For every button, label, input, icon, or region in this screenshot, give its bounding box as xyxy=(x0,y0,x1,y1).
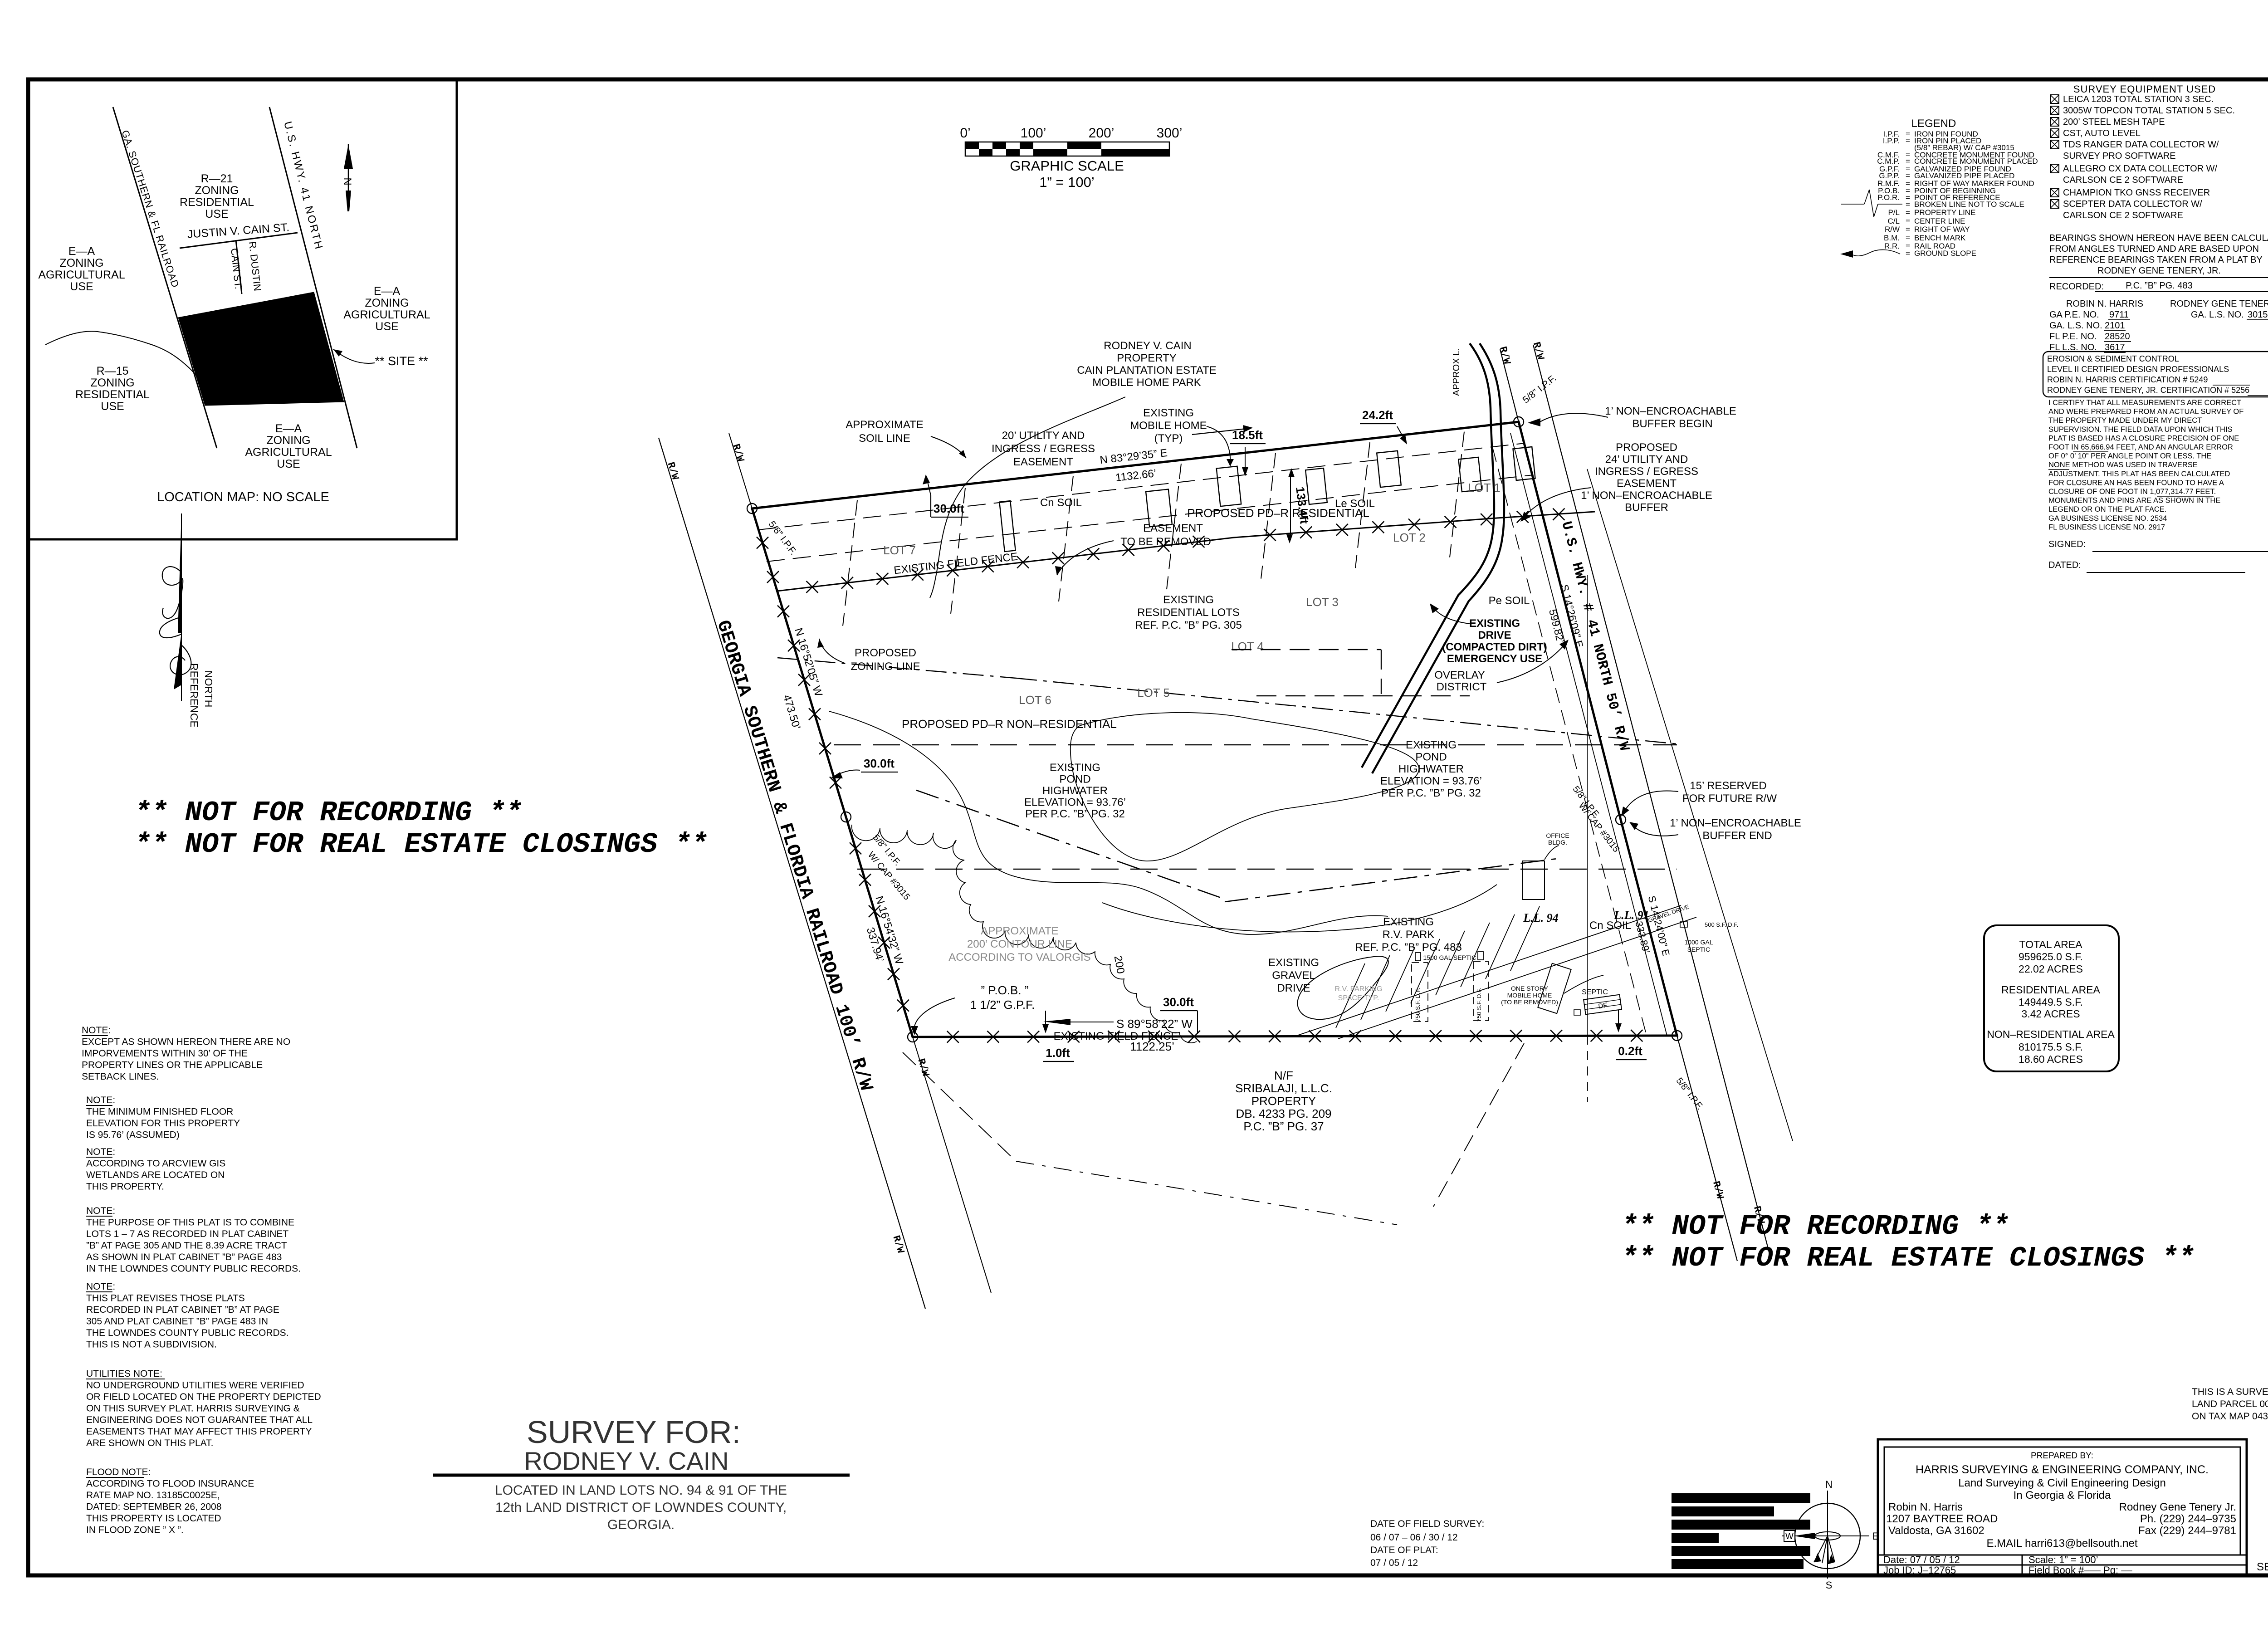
svg-text:P/L: P/L xyxy=(1888,208,1900,217)
svg-text:LOT 4: LOT 4 xyxy=(1231,640,1264,653)
svg-text:GA P.E. NO.: GA P.E. NO. xyxy=(2049,310,2099,320)
svg-text:SURVEY PRO SOFTWARE: SURVEY PRO SOFTWARE xyxy=(2063,151,2176,161)
svg-text:W: W xyxy=(1785,1532,1794,1541)
svg-text:EXISTING: EXISTING xyxy=(1143,407,1194,419)
svg-text:THIS PROPERTY IS LOCATED: THIS PROPERTY IS LOCATED xyxy=(86,1513,221,1524)
svg-text:RODNEY GENE TENERY, JR. CERTIF: RODNEY GENE TENERY, JR. CERTIFICATION # … xyxy=(2047,386,2249,395)
svg-text:NORTH: NORTH xyxy=(203,670,215,707)
svg-text:24’ UTILITY AND: 24’ UTILITY AND xyxy=(1605,454,1688,466)
svg-text:LOT 6: LOT 6 xyxy=(1019,693,1051,707)
svg-text:810175.5 S.F.: 810175.5 S.F. xyxy=(2019,1041,2083,1053)
svg-text:FLOOD NOTE:: FLOOD NOTE: xyxy=(86,1467,151,1477)
svg-text:THIS IS NOT A SUBDIVISION.: THIS IS NOT A SUBDIVISION. xyxy=(86,1340,217,1350)
svg-text:FOR FUTURE R/W: FOR FUTURE R/W xyxy=(1682,792,1777,805)
svg-text:12th LAND DISTRICT OF LOWNDES: 12th LAND DISTRICT OF LOWNDES COUNTY, xyxy=(495,1500,787,1515)
svg-text:C/L: C/L xyxy=(1888,217,1900,225)
svg-text:GA. L.S. NO.: GA. L.S. NO. xyxy=(2049,321,2102,331)
svg-text:=: = xyxy=(1906,137,1910,145)
svg-text:USE: USE xyxy=(205,208,228,220)
svg-text:REFERENCE BEARINGS TAKEN FROM: REFERENCE BEARINGS TAKEN FROM A PLAT BY xyxy=(2049,255,2263,265)
svg-text:RATE MAP NO. 13185C0025E,: RATE MAP NO. 13185C0025E, xyxy=(86,1490,220,1501)
svg-text:THIS IS A SURVEY OF: THIS IS A SURVEY OF xyxy=(2192,1387,2268,1397)
svg-text:Job ID: J–12765: Job ID: J–12765 xyxy=(1883,1565,1956,1576)
svg-text:EXISTING: EXISTING xyxy=(1383,916,1434,928)
svg-text:ZONING: ZONING xyxy=(90,376,134,389)
svg-text:NOTE:: NOTE: xyxy=(86,1147,115,1157)
svg-text:ZONING: ZONING xyxy=(59,257,103,269)
svg-text:RODNEY V. CAIN: RODNEY V. CAIN xyxy=(524,1447,728,1475)
svg-text:** NOT FOR RECORDING **: ** NOT FOR RECORDING ** xyxy=(134,797,523,829)
svg-text:LOTS 1 – 7 AS RECORDED IN PLAT: LOTS 1 – 7 AS RECORDED IN PLAT CABINET xyxy=(86,1229,288,1239)
svg-text:RESIDENTIAL LOTS: RESIDENTIAL LOTS xyxy=(1137,606,1240,619)
svg-text:EASEMENT: EASEMENT xyxy=(1143,522,1203,534)
svg-text:INGRESS / EGRESS: INGRESS / EGRESS xyxy=(992,443,1095,455)
svg-text:HIGHWATER: HIGHWATER xyxy=(1398,763,1464,775)
svg-text:750 S.F. D.F.: 750 S.F. D.F. xyxy=(1414,988,1421,1022)
svg-text:30.0ft: 30.0ft xyxy=(864,757,894,770)
svg-text:(TO BE REMOVED): (TO BE REMOVED) xyxy=(1501,998,1558,1006)
svg-text:R—21: R—21 xyxy=(201,172,233,185)
svg-text:200’ CONTOUR LINE: 200’ CONTOUR LINE xyxy=(967,938,1072,950)
svg-text:OR FIELD LOCATED ON THE PROPER: OR FIELD LOCATED ON THE PROPERTY DEPICTE… xyxy=(86,1392,321,1402)
svg-text:LOCATED IN LAND LOTS NO. 94 &: LOCATED IN LAND LOTS NO. 94 & 91 OF THE xyxy=(495,1483,787,1498)
svg-text:R/W: R/W xyxy=(1885,225,1900,234)
svg-text:CHAMPION TKO GNSS RECEIVER: CHAMPION TKO GNSS RECEIVER xyxy=(2063,188,2210,198)
svg-text:APPROXIMATE: APPROXIMATE xyxy=(981,925,1059,937)
svg-text:SOIL LINE: SOIL LINE xyxy=(859,432,910,445)
svg-text:UTILITIES NOTE:: UTILITIES NOTE: xyxy=(86,1369,162,1379)
svg-text:R—15: R—15 xyxy=(97,365,129,377)
svg-text:500 S.F. D.F.: 500 S.F. D.F. xyxy=(1705,921,1738,928)
svg-text:300’: 300’ xyxy=(1157,126,1183,141)
svg-text:” P.O.B. ”: ” P.O.B. ” xyxy=(981,983,1029,997)
svg-text:PROPOSED: PROPOSED xyxy=(855,647,916,659)
svg-text:GA. L.S. NO.: GA. L.S. NO. xyxy=(2191,310,2244,320)
svg-text:3015: 3015 xyxy=(2248,310,2268,320)
svg-text:AGRICULTURAL: AGRICULTURAL xyxy=(245,446,332,459)
svg-text:** NOT FOR RECORDING **: ** NOT FOR RECORDING ** xyxy=(1621,1210,2009,1242)
svg-text:LOT 1: LOT 1 xyxy=(1468,481,1501,494)
svg-text:Land Surveying & Civil Eng: Land Surveying & Civil Engineering Desig… xyxy=(1958,1477,2166,1489)
svg-text:FL L.S. NO.: FL L.S. NO. xyxy=(2049,342,2097,352)
svg-text:POND: POND xyxy=(1415,751,1447,763)
svg-text:REF. P.C. ”B” PG. 483: REF. P.C. ”B” PG. 483 xyxy=(1355,941,1462,953)
svg-text:EASEMENTS THAT MAY AFFECT THIS: EASEMENTS THAT MAY AFFECT THIS PROPERTY xyxy=(86,1427,312,1437)
svg-text:RESIDENTIAL AREA: RESIDENTIAL AREA xyxy=(2001,984,2100,996)
svg-text:15’ RESERVED: 15’ RESERVED xyxy=(1690,780,1766,792)
svg-text:(COMPACTED DIRT): (COMPACTED DIRT) xyxy=(1442,641,1547,653)
svg-text:R.V. PARKING: R.V. PARKING xyxy=(1335,985,1383,993)
svg-text:USE: USE xyxy=(70,280,93,293)
svg-text:R.V. PARK: R.V. PARK xyxy=(1383,929,1435,941)
svg-text:FOR CLOSURE AN HAS BEEN FOUND: FOR CLOSURE AN HAS BEEN FOUND TO HAVE A xyxy=(2048,479,2224,487)
svg-text:DATE OF FIELD SURVEY:: DATE OF FIELD SURVEY: xyxy=(1370,1519,1484,1529)
svg-text:E—A: E—A xyxy=(275,422,302,435)
svg-text:EXISTING: EXISTING xyxy=(1163,594,1214,606)
svg-text:=: = xyxy=(1906,200,1910,209)
svg-text:CENTER LINE: CENTER LINE xyxy=(1914,217,1965,225)
svg-text:24.2ft: 24.2ft xyxy=(1362,408,1393,422)
svg-text:PROPERTY: PROPERTY xyxy=(1251,1094,1316,1108)
svg-text:ACCORDING TO VALORGIS: ACCORDING TO VALORGIS xyxy=(948,951,1090,963)
svg-text:PER P.C. ”B” PG. 32: PER P.C. ”B” PG. 32 xyxy=(1025,808,1125,820)
svg-text:CARLSON CE 2 SOFTWARE: CARLSON CE 2 SOFTWARE xyxy=(2063,175,2183,185)
svg-text:FL BUSINESS LICENSE NO. 2917: FL BUSINESS LICENSE NO. 2917 xyxy=(2048,523,2165,531)
svg-text:OVERLAY: OVERLAY xyxy=(1434,669,1485,681)
svg-text:Scale: 1” = 100’: Scale: 1” = 100’ xyxy=(2028,1554,2098,1565)
svg-text:USE: USE xyxy=(375,320,398,333)
svg-text:18.5ft: 18.5ft xyxy=(1232,428,1263,442)
svg-text:PROPERTY LINES OR THE APPLICAB: PROPERTY LINES OR THE APPLICABLE xyxy=(82,1060,263,1071)
svg-text:EXISTING: EXISTING xyxy=(1050,762,1100,774)
svg-text:ROBIN N. HARRIS: ROBIN N. HARRIS xyxy=(2066,299,2143,309)
svg-text:P.O.R.: P.O.R. xyxy=(1877,193,1900,202)
svg-text:MOBILE HOME: MOBILE HOME xyxy=(1130,420,1207,432)
svg-text:MOBILE HOME PARK: MOBILE HOME PARK xyxy=(1092,376,1201,389)
svg-text:1’ NON–ENCROACHABLE: 1’ NON–ENCROACHABLE xyxy=(1605,405,1736,417)
svg-text:30.0ft: 30.0ft xyxy=(1163,995,1194,1009)
svg-text:BLDG.: BLDG. xyxy=(1548,839,1567,846)
svg-text:** NOT FOR REAL ESTATE CLOSING: ** NOT FOR REAL ESTATE CLOSINGS ** xyxy=(1621,1242,2195,1274)
svg-text:ALLEGRO CX DATA COLLECTOR W/: ALLEGRO CX DATA COLLECTOR W/ xyxy=(2063,164,2218,174)
svg-text:REF. P.C. ”B” PG. 305: REF. P.C. ”B” PG. 305 xyxy=(1135,619,1242,631)
svg-text:=: = xyxy=(1906,217,1910,225)
svg-text:DATE OF PLAT:: DATE OF PLAT: xyxy=(1370,1545,1438,1555)
svg-text:ZONING: ZONING xyxy=(365,297,409,309)
svg-text:AND WERE PREPARED FROM AN ACTU: AND WERE PREPARED FROM AN ACTUAL SURVEY … xyxy=(2048,408,2244,416)
svg-text:IN THE LOWNDES COUNTY PUBLIC R: IN THE LOWNDES COUNTY PUBLIC RECORDS. xyxy=(86,1264,301,1274)
svg-text:30.0ft: 30.0ft xyxy=(934,502,964,515)
svg-text:NOTE:: NOTE: xyxy=(86,1206,115,1216)
svg-text:E—A: E—A xyxy=(68,245,95,258)
svg-text:FL P.E. NO.: FL P.E. NO. xyxy=(2049,332,2097,342)
svg-text:EROSION & SEDIMENT CONTROL: EROSION & SEDIMENT CONTROL xyxy=(2047,354,2179,363)
svg-text:0.2ft: 0.2ft xyxy=(1618,1044,1642,1058)
svg-text:1000 GAL: 1000 GAL xyxy=(1684,939,1713,946)
svg-text:ELEVATION = 93.76’: ELEVATION = 93.76’ xyxy=(1024,797,1126,809)
svg-text:APPROXIMATE: APPROXIMATE xyxy=(846,419,924,431)
svg-text:REFERENCE: REFERENCE xyxy=(188,663,200,728)
svg-text:ELEVATION = 93.76’: ELEVATION = 93.76’ xyxy=(1380,775,1482,787)
svg-text:TDS RANGER DATA COLLECTOR W/: TDS RANGER DATA COLLECTOR W/ xyxy=(2063,140,2219,150)
svg-text:ON THIS SURVEY PLAT. HARRIS SU: ON THIS SURVEY PLAT. HARRIS SURVEYING & xyxy=(86,1403,300,1414)
svg-text:EMERGENCY USE: EMERGENCY USE xyxy=(1447,653,1542,665)
svg-text:TO BE REMOVED: TO BE REMOVED xyxy=(1120,536,1211,548)
svg-text:E.MAIL harri613@bellsouth.net: E.MAIL harri613@bellsouth.net xyxy=(1987,1537,2138,1550)
svg-text:22.02 ACRES: 22.02 ACRES xyxy=(2019,963,2083,975)
svg-text:DB. 4233 PG. 209: DB. 4233 PG. 209 xyxy=(1236,1107,1331,1120)
svg-text:LOT 5: LOT 5 xyxy=(1137,686,1170,699)
svg-text:SEPTIC: SEPTIC xyxy=(1687,946,1711,953)
svg-text:FOOT IN 65,666.94 FEET, AND AN: FOOT IN 65,666.94 FEET, AND AN ANGULAR E… xyxy=(2048,443,2233,451)
svg-text:LEICA 1203 TOTAL STATION 3 SEC: LEICA 1203 TOTAL STATION 3 SEC. xyxy=(2063,94,2214,104)
svg-text:R.R.: R.R. xyxy=(1884,242,1900,250)
svg-text:TOTAL AREA: TOTAL AREA xyxy=(2019,939,2083,950)
svg-text:NO UNDERGROUND UTILITIES WERE: NO UNDERGROUND UTILITIES WERE VERIFIED xyxy=(86,1380,304,1391)
svg-text:1.0ft: 1.0ft xyxy=(1046,1046,1070,1060)
svg-text:RIGHT OF WAY: RIGHT OF WAY xyxy=(1914,225,1970,234)
svg-text:CARLSON CE 2 SOFTWARE: CARLSON CE 2 SOFTWARE xyxy=(2063,210,2183,220)
svg-text:PROPOSED PD–R NON–RESIDENTIA: PROPOSED PD–R NON–RESIDENTIAL xyxy=(902,717,1117,731)
svg-text:DRIVE: DRIVE xyxy=(1277,982,1310,994)
svg-text:BEARINGS SHOWN HEREON HAVE BEE: BEARINGS SHOWN HEREON HAVE BEEN CALCULAT… xyxy=(2049,233,2268,243)
svg-text:9711: 9711 xyxy=(2109,310,2129,320)
svg-text:HARRIS SURVEYING & ENGINEER: HARRIS SURVEYING & ENGINEERING COMPANY, … xyxy=(1916,1463,2209,1476)
svg-text:HIGHWATER: HIGHWATER xyxy=(1042,785,1108,797)
svg-text:POND: POND xyxy=(1059,773,1090,786)
svg-text:L.L. 94: L.L. 94 xyxy=(1523,911,1558,924)
svg-text:LOCATION MAP: NO SCALE: LOCATION MAP: NO SCALE xyxy=(157,490,329,504)
svg-text:Rodney Gene Tenery Jr.: Rodney Gene Tenery Jr. xyxy=(2119,1501,2236,1513)
svg-text:RESIDENTIAL: RESIDENTIAL xyxy=(180,196,254,209)
svg-text:3005W TOPCON TOTAL STATION 5 S: 3005W TOPCON TOTAL STATION 5 SEC. xyxy=(2063,106,2235,116)
svg-text:ACCORDING TO FLOOD INSURANCE: ACCORDING TO FLOOD INSURANCE xyxy=(86,1479,254,1489)
svg-text:1500 GAL SEPTIC: 1500 GAL SEPTIC xyxy=(1423,954,1476,961)
svg-text:DATED:: DATED: xyxy=(2048,560,2081,570)
svg-text:Date: 07 / 05 / 12: Date: 07 / 05 / 12 xyxy=(1883,1554,1960,1565)
svg-text:1’ NON–ENCROACHABLE: 1’ NON–ENCROACHABLE xyxy=(1581,489,1712,502)
svg-text:Pe SOIL: Pe SOIL xyxy=(1489,595,1530,607)
svg-text:AGRICULTURAL: AGRICULTURAL xyxy=(38,269,125,281)
svg-text:(TYP): (TYP) xyxy=(1154,432,1183,445)
svg-text:959625.0 S.F.: 959625.0 S.F. xyxy=(2019,951,2083,963)
svg-text:EXISTING: EXISTING xyxy=(1268,957,1319,969)
svg-text:RECORDED IN PLAT CABINET ”B” A: RECORDED IN PLAT CABINET ”B” AT PAGE xyxy=(86,1305,279,1315)
svg-text:THE MINIMUM FINISHED FLOOR: THE MINIMUM FINISHED FLOOR xyxy=(86,1107,233,1117)
svg-text:LEVEL II CERTIFIED DESIGN PROF: LEVEL II CERTIFIED DESIGN PROFESSIONALS xyxy=(2047,365,2229,374)
svg-text:PER P.C. ”B” PG. 32: PER P.C. ”B” PG. 32 xyxy=(1381,787,1481,799)
svg-text:LOT 3: LOT 3 xyxy=(1306,595,1339,609)
svg-text:06 / 07 – 06 / 30 / 12: 06 / 07 – 06 / 30 / 12 xyxy=(1370,1532,1458,1543)
svg-text:LAND PARCEL 004: LAND PARCEL 004 xyxy=(2192,1399,2268,1409)
svg-text:EXCEPT AS SHOWN HEREON THERE A: EXCEPT AS SHOWN HEREON THERE ARE NO xyxy=(82,1037,290,1047)
svg-text:PLAT IS BASED HAS A CLOSURE PR: PLAT IS BASED HAS A CLOSURE PRECISION OF… xyxy=(2048,434,2239,442)
svg-text:I.P.P.: I.P.P. xyxy=(1883,137,1900,145)
svg-text:NONE METHOD WAS USED IN TR: NONE METHOD WAS USED IN TRAVERSE xyxy=(2048,461,2198,469)
svg-text:INGRESS / EGRESS: INGRESS / EGRESS xyxy=(1595,465,1698,478)
svg-text:P.C. ”B” PG. 37: P.C. ”B” PG. 37 xyxy=(1243,1120,1324,1133)
svg-text:NOTE:: NOTE: xyxy=(86,1095,115,1105)
svg-text:THE PURPOSE OF THIS PLAT IS TO: THE PURPOSE OF THIS PLAT IS TO COMBINE xyxy=(86,1217,294,1228)
svg-text:AS SHOWN IN PLAT CABINET ”B” P: AS SHOWN IN PLAT CABINET ”B” PAGE 483 xyxy=(86,1252,282,1262)
svg-text:EASEMENT: EASEMENT xyxy=(1617,478,1677,490)
svg-text:750 S.F. D.F.: 750 S.F. D.F. xyxy=(1476,988,1482,1022)
svg-text:PROPOSED: PROPOSED xyxy=(1616,441,1677,454)
svg-text:1207 BAYTREE ROAD: 1207 BAYTREE ROAD xyxy=(1886,1513,1998,1525)
svg-text:N/F: N/F xyxy=(1274,1069,1293,1082)
svg-text:ADJUSTMENT. THIS PLAT HAS BEEN: ADJUSTMENT. THIS PLAT HAS BEEN CALCULATE… xyxy=(2048,470,2230,478)
svg-text:OFFICE: OFFICE xyxy=(1546,832,1569,839)
svg-text:PROPERTY LINE: PROPERTY LINE xyxy=(1914,208,1975,217)
svg-text:SPACE TYP.: SPACE TYP. xyxy=(1338,994,1379,1002)
svg-text:LEGEND: LEGEND xyxy=(1911,117,1956,130)
svg-text:OF 0° 0’ 10” PER ANGLE POINT O: OF 0° 0’ 10” PER ANGLE POINT OR LESS. TH… xyxy=(2048,452,2211,460)
svg-text:RODNEY V. CAIN: RODNEY V. CAIN xyxy=(1104,340,1191,352)
svg-text:Fax (229) 244–9781: Fax (229) 244–9781 xyxy=(2138,1525,2236,1537)
svg-text:ZONING: ZONING xyxy=(266,434,310,447)
svg-text:E: E xyxy=(1872,1530,1879,1542)
svg-text:3617: 3617 xyxy=(2105,342,2125,352)
svg-text:SURVEY EQUIPMENT USED: SURVEY EQUIPMENT USED xyxy=(2073,83,2216,95)
svg-text:RODNEY GENE TENERY, JR.: RODNEY GENE TENERY, JR. xyxy=(2170,299,2268,309)
svg-text:USE: USE xyxy=(277,458,300,470)
svg-text:ARE SHOWN ON THIS PLAT.: ARE SHOWN ON THIS PLAT. xyxy=(86,1438,213,1448)
svg-text:WETLANDS ARE LOCATED ON: WETLANDS ARE LOCATED ON xyxy=(86,1170,225,1180)
svg-text:EXISTING: EXISTING xyxy=(1469,617,1520,630)
svg-text:=: = xyxy=(1906,234,1910,242)
svg-text:ZONING LINE: ZONING LINE xyxy=(850,660,920,673)
svg-text:E—A: E—A xyxy=(374,285,401,298)
svg-text:RECORDED:: RECORDED: xyxy=(2049,282,2104,292)
svg-text:Cn SOIL: Cn SOIL xyxy=(1040,497,1082,509)
svg-text:”B” AT PAGE 305 AND THE 8.39 A: ”B” AT PAGE 305 AND THE 8.39 ACRE TRACT xyxy=(86,1241,287,1251)
svg-text:GA BUSINESS LICENSE NO. 2534: GA BUSINESS LICENSE NO. 2534 xyxy=(2048,514,2167,523)
svg-text:07 / 05 / 12: 07 / 05 / 12 xyxy=(1370,1558,1418,1568)
svg-text:=: = xyxy=(1906,225,1910,234)
svg-text:THE LOWNDES COUNTY PUBLIC RECO: THE LOWNDES COUNTY PUBLIC RECORDS. xyxy=(86,1328,289,1338)
svg-text:18.60 ACRES: 18.60 ACRES xyxy=(2019,1053,2083,1065)
svg-text:** NOT FOR REAL ESTATE CLOSING: ** NOT FOR REAL ESTATE CLOSINGS ** xyxy=(134,828,708,861)
svg-text:ON TAX MAP 043: ON TAX MAP 043 xyxy=(2192,1411,2268,1422)
svg-text:GRAVEL: GRAVEL xyxy=(1272,969,1315,982)
svg-text:IS 95.76’ (ASSUMED): IS 95.76’ (ASSUMED) xyxy=(86,1130,180,1140)
svg-text:EXISTING FIELD FENCE: EXISTING FIELD FENCE xyxy=(1054,1030,1178,1042)
svg-text:GEORGIA.: GEORGIA. xyxy=(607,1517,675,1532)
svg-text:BROKEN LINE NOT TO SCALE: BROKEN LINE NOT TO SCALE xyxy=(1914,200,2024,209)
svg-text:0’: 0’ xyxy=(960,126,970,141)
svg-text:GROUND SLOPE: GROUND SLOPE xyxy=(1914,249,1976,258)
svg-text:NOTE:: NOTE: xyxy=(82,1025,111,1036)
svg-text:LOT 2: LOT 2 xyxy=(1393,531,1426,544)
svg-text:SUPERVISION. THE FIELD DATA UP: SUPERVISION. THE FIELD DATA UPON WHICH T… xyxy=(2048,425,2233,434)
svg-text:1 1/2” G.P.F.: 1 1/2” G.P.F. xyxy=(970,998,1035,1012)
svg-text:SIGNED:: SIGNED: xyxy=(2048,539,2086,549)
svg-text:3.42 ACRES: 3.42 ACRES xyxy=(2021,1008,2080,1020)
svg-text:200’: 200’ xyxy=(1089,126,1114,141)
svg-text:S 89°58’22” W: S 89°58’22” W xyxy=(1116,1017,1193,1031)
svg-text:EXISTING: EXISTING xyxy=(1406,739,1457,751)
svg-text:APPROX L.: APPROX L. xyxy=(1452,348,1461,396)
svg-text:ZONING: ZONING xyxy=(195,184,239,197)
svg-text:BUFFER END: BUFFER END xyxy=(1702,830,1772,842)
svg-text:N: N xyxy=(1825,1479,1833,1490)
svg-text:BENCH MARK: BENCH MARK xyxy=(1914,234,1966,242)
svg-text:In Georgia & Florida: In Georgia & Florida xyxy=(2014,1489,2111,1501)
svg-text:SRIBALAJI, L.L.C.: SRIBALAJI, L.L.C. xyxy=(1235,1081,1332,1095)
svg-text:=: = xyxy=(1906,249,1910,258)
svg-text:MONUMENTS AND PINS ARE AS SHOW: MONUMENTS AND PINS ARE AS SHOWN IN THE xyxy=(2048,497,2220,505)
svg-text:SEPTIC: SEPTIC xyxy=(1582,988,1608,996)
svg-text:DISTRICT: DISTRICT xyxy=(1437,681,1487,693)
svg-text:N: N xyxy=(341,177,353,185)
svg-text:S: S xyxy=(1826,1579,1833,1591)
svg-text:Ph. (229) 244–9735: Ph. (229) 244–9735 xyxy=(2140,1513,2236,1525)
svg-text:IMPORVEMENTS WITHIN 30’ OF THE: IMPORVEMENTS WITHIN 30’ OF THE xyxy=(82,1048,248,1059)
svg-text:AGRICULTURAL: AGRICULTURAL xyxy=(343,308,430,321)
svg-text:CAIN PLANTATION ESTATE: CAIN PLANTATION ESTATE xyxy=(1077,364,1217,376)
svg-text:B.M.: B.M. xyxy=(1884,234,1900,242)
svg-text:** SITE **: ** SITE ** xyxy=(375,354,428,368)
svg-text:Valdosta, GA 31602: Valdosta, GA 31602 xyxy=(1888,1525,1984,1537)
svg-text:CLOSURE OF ONE FOOT IN 1,077,3: CLOSURE OF ONE FOOT IN 1,077,314.77 FEET… xyxy=(2048,488,2216,496)
svg-text:Field Book #––– Pg: ––: Field Book #––– Pg: –– xyxy=(2028,1565,2132,1576)
svg-text:=: = xyxy=(1906,208,1910,217)
svg-text:149449.5 S.F.: 149449.5 S.F. xyxy=(2019,996,2083,1008)
svg-text:RODNEY GENE TENERY, JR.: RODNEY GENE TENERY, JR. xyxy=(2097,266,2221,276)
svg-text:LOT 7: LOT 7 xyxy=(883,543,916,557)
svg-text:DATED: SEPTEMBER 26, 2008: DATED: SEPTEMBER 26, 2008 xyxy=(86,1502,221,1512)
svg-text:THIS PROPERTY.: THIS PROPERTY. xyxy=(86,1182,164,1192)
svg-text:1’ NON–ENCROACHABLE: 1’ NON–ENCROACHABLE xyxy=(1670,817,1801,829)
svg-text:IN FLOOD ZONE ” X ”.: IN FLOOD ZONE ” X ”. xyxy=(86,1525,184,1535)
svg-text:SCEPTER DATA COLLECTOR W/: SCEPTER DATA COLLECTOR W/ xyxy=(2063,199,2202,209)
svg-text:FROM ANGLES TURNED AND ARE BAS: FROM ANGLES TURNED AND ARE BASED UPON xyxy=(2049,244,2259,254)
svg-text:Robin N. Harris: Robin N. Harris xyxy=(1888,1501,1963,1513)
svg-text:100’: 100’ xyxy=(1021,126,1046,141)
svg-text:THIS PLAT REVISES THOSE PLATS: THIS PLAT REVISES THOSE PLATS xyxy=(86,1293,245,1304)
svg-text:EASEMENT: EASEMENT xyxy=(1013,456,1073,468)
svg-text:BUFFER: BUFFER xyxy=(1625,502,1668,514)
svg-text:DRIVE: DRIVE xyxy=(1478,629,1511,641)
svg-text:PROPERTY: PROPERTY xyxy=(1117,352,1177,364)
svg-text:CST, AUTO LEVEL: CST, AUTO LEVEL xyxy=(2063,128,2141,138)
svg-text:305 AND PLAT CABINET ”B” PAGE: 305 AND PLAT CABINET ”B” PAGE 483 IN xyxy=(86,1316,268,1327)
svg-text:ELEVATION FOR THIS PROPERTY: ELEVATION FOR THIS PROPERTY xyxy=(86,1118,240,1129)
svg-text:MOBILE HOME: MOBILE HOME xyxy=(1507,992,1552,999)
svg-text:Cn SOIL: Cn SOIL xyxy=(1589,919,1631,932)
svg-text:SURVEY FOR:: SURVEY FOR: xyxy=(527,1414,741,1450)
svg-text:I CERTIFY THAT ALL MEASUREMENT: I CERTIFY THAT ALL MEASUREMENTS ARE CORR… xyxy=(2048,399,2241,407)
svg-text:2101: 2101 xyxy=(2105,321,2125,331)
svg-text:THE PROPERTY MADE UNDER MY DIR: THE PROPERTY MADE UNDER MY DIRECT xyxy=(2048,416,2202,425)
svg-text:NOTE:: NOTE: xyxy=(86,1281,115,1292)
svg-text:NON–RESIDENTIAL AREA: NON–RESIDENTIAL AREA xyxy=(1987,1028,2115,1040)
svg-text:LEGEND OR ON THE PLAT FACE.: LEGEND OR ON THE PLAT FACE. xyxy=(2048,505,2166,513)
svg-text:PREPARED BY:: PREPARED BY: xyxy=(2031,1451,2093,1461)
svg-text:ACCORDING TO ARCVIEW GIS: ACCORDING TO ARCVIEW GIS xyxy=(86,1159,225,1169)
svg-text:RESIDENTIAL: RESIDENTIAL xyxy=(75,388,150,401)
svg-text:SEAL: SEAL xyxy=(2257,1561,2268,1573)
svg-text:28520: 28520 xyxy=(2105,332,2130,342)
svg-text:ROBIN N. HARRIS CERTIFICATION: ROBIN N. HARRIS CERTIFICATION # 5249 xyxy=(2047,375,2208,384)
svg-text:GRAPHIC SCALE: GRAPHIC SCALE xyxy=(1010,158,1124,174)
svg-text:200’ STEEL MESH TAPE: 200’ STEEL MESH TAPE xyxy=(2063,117,2165,127)
svg-text:ENGINEERING DOES NOT GUARANTEE: ENGINEERING DOES NOT GUARANTEE THAT ALL xyxy=(86,1415,313,1425)
svg-text:1” = 100’: 1” = 100’ xyxy=(1039,174,1095,190)
svg-text:BUFFER BEGIN: BUFFER BEGIN xyxy=(1632,418,1712,430)
svg-text:SETBACK LINES.: SETBACK LINES. xyxy=(82,1071,159,1082)
svg-text:Le SOIL: Le SOIL xyxy=(1335,498,1375,510)
svg-text:P.C. ”B” PG. 483: P.C. ”B” PG. 483 xyxy=(2126,281,2192,291)
svg-text:USE: USE xyxy=(101,400,124,413)
